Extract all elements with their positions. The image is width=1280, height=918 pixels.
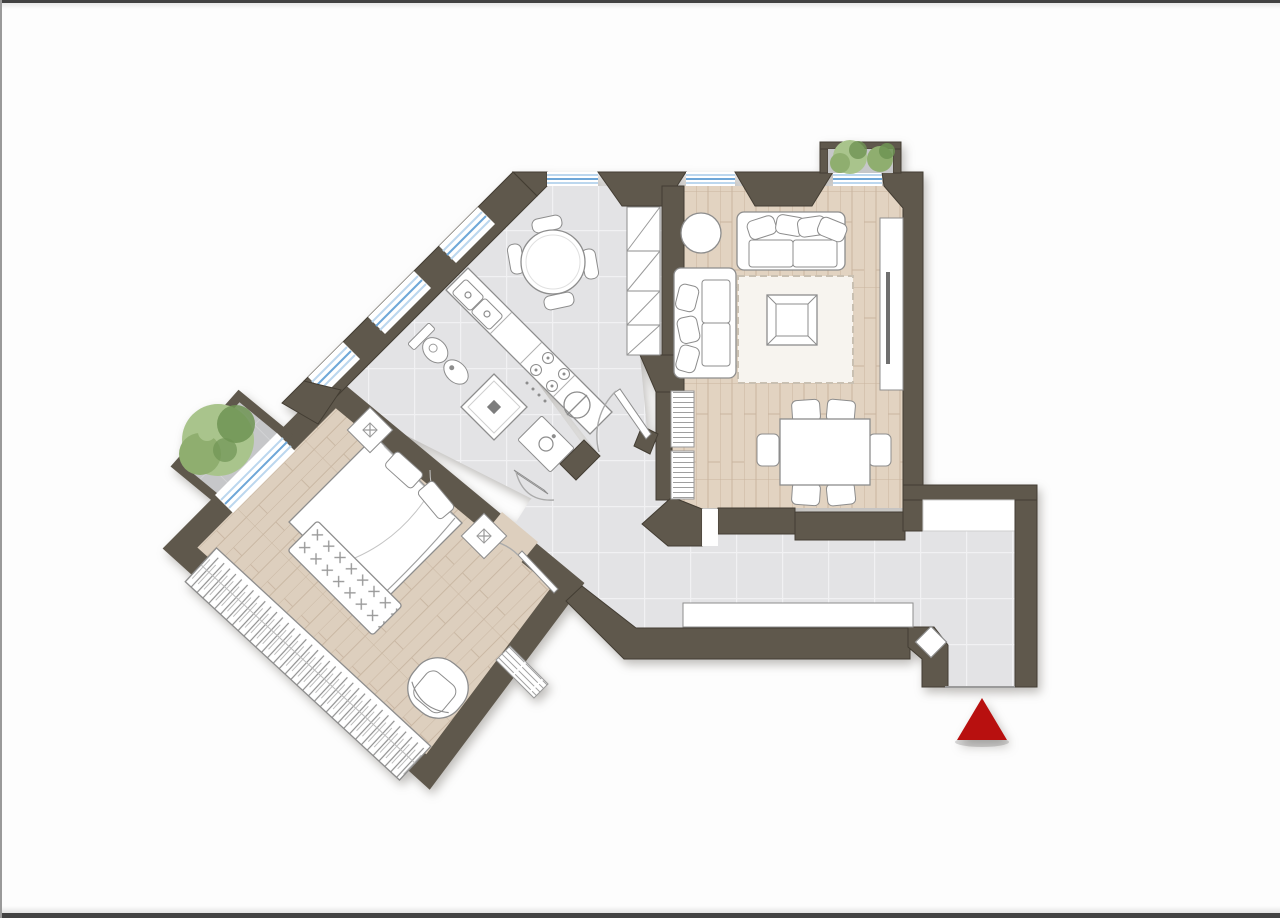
kitchen-top-window [547, 172, 598, 186]
tv-sideboard [880, 218, 903, 390]
living-radiator [671, 391, 694, 499]
wall-living-bottom-right [795, 512, 905, 540]
hall-sideboard [683, 603, 913, 627]
wall-hall-top [903, 485, 1037, 500]
two-seat-sofa [674, 268, 736, 378]
tall-cabinet-column [627, 207, 660, 355]
living-threshold [702, 509, 718, 546]
floor-plan-page [0, 0, 1280, 918]
entrance-triangle [957, 698, 1007, 740]
wall-living-bottom-left [718, 508, 795, 534]
wall-hall-right [1015, 500, 1037, 687]
stairwell-niche [923, 500, 1015, 531]
television [886, 272, 890, 364]
wall-living-left [656, 392, 672, 500]
balcony-tree [179, 404, 255, 476]
square-coffee-table [767, 295, 817, 345]
three-seat-sofa [737, 212, 849, 270]
apartment-plan [177, 140, 1037, 780]
wall-hall-stub [903, 500, 923, 531]
dining-table [780, 419, 870, 485]
entrance-marker [955, 698, 1009, 747]
hall-furniture [683, 603, 913, 627]
floor-plan-svg [0, 0, 1280, 918]
living-window-right [833, 172, 882, 186]
living-room-planter [820, 140, 901, 174]
round-side-table [681, 213, 721, 253]
living-window-left [686, 172, 735, 186]
